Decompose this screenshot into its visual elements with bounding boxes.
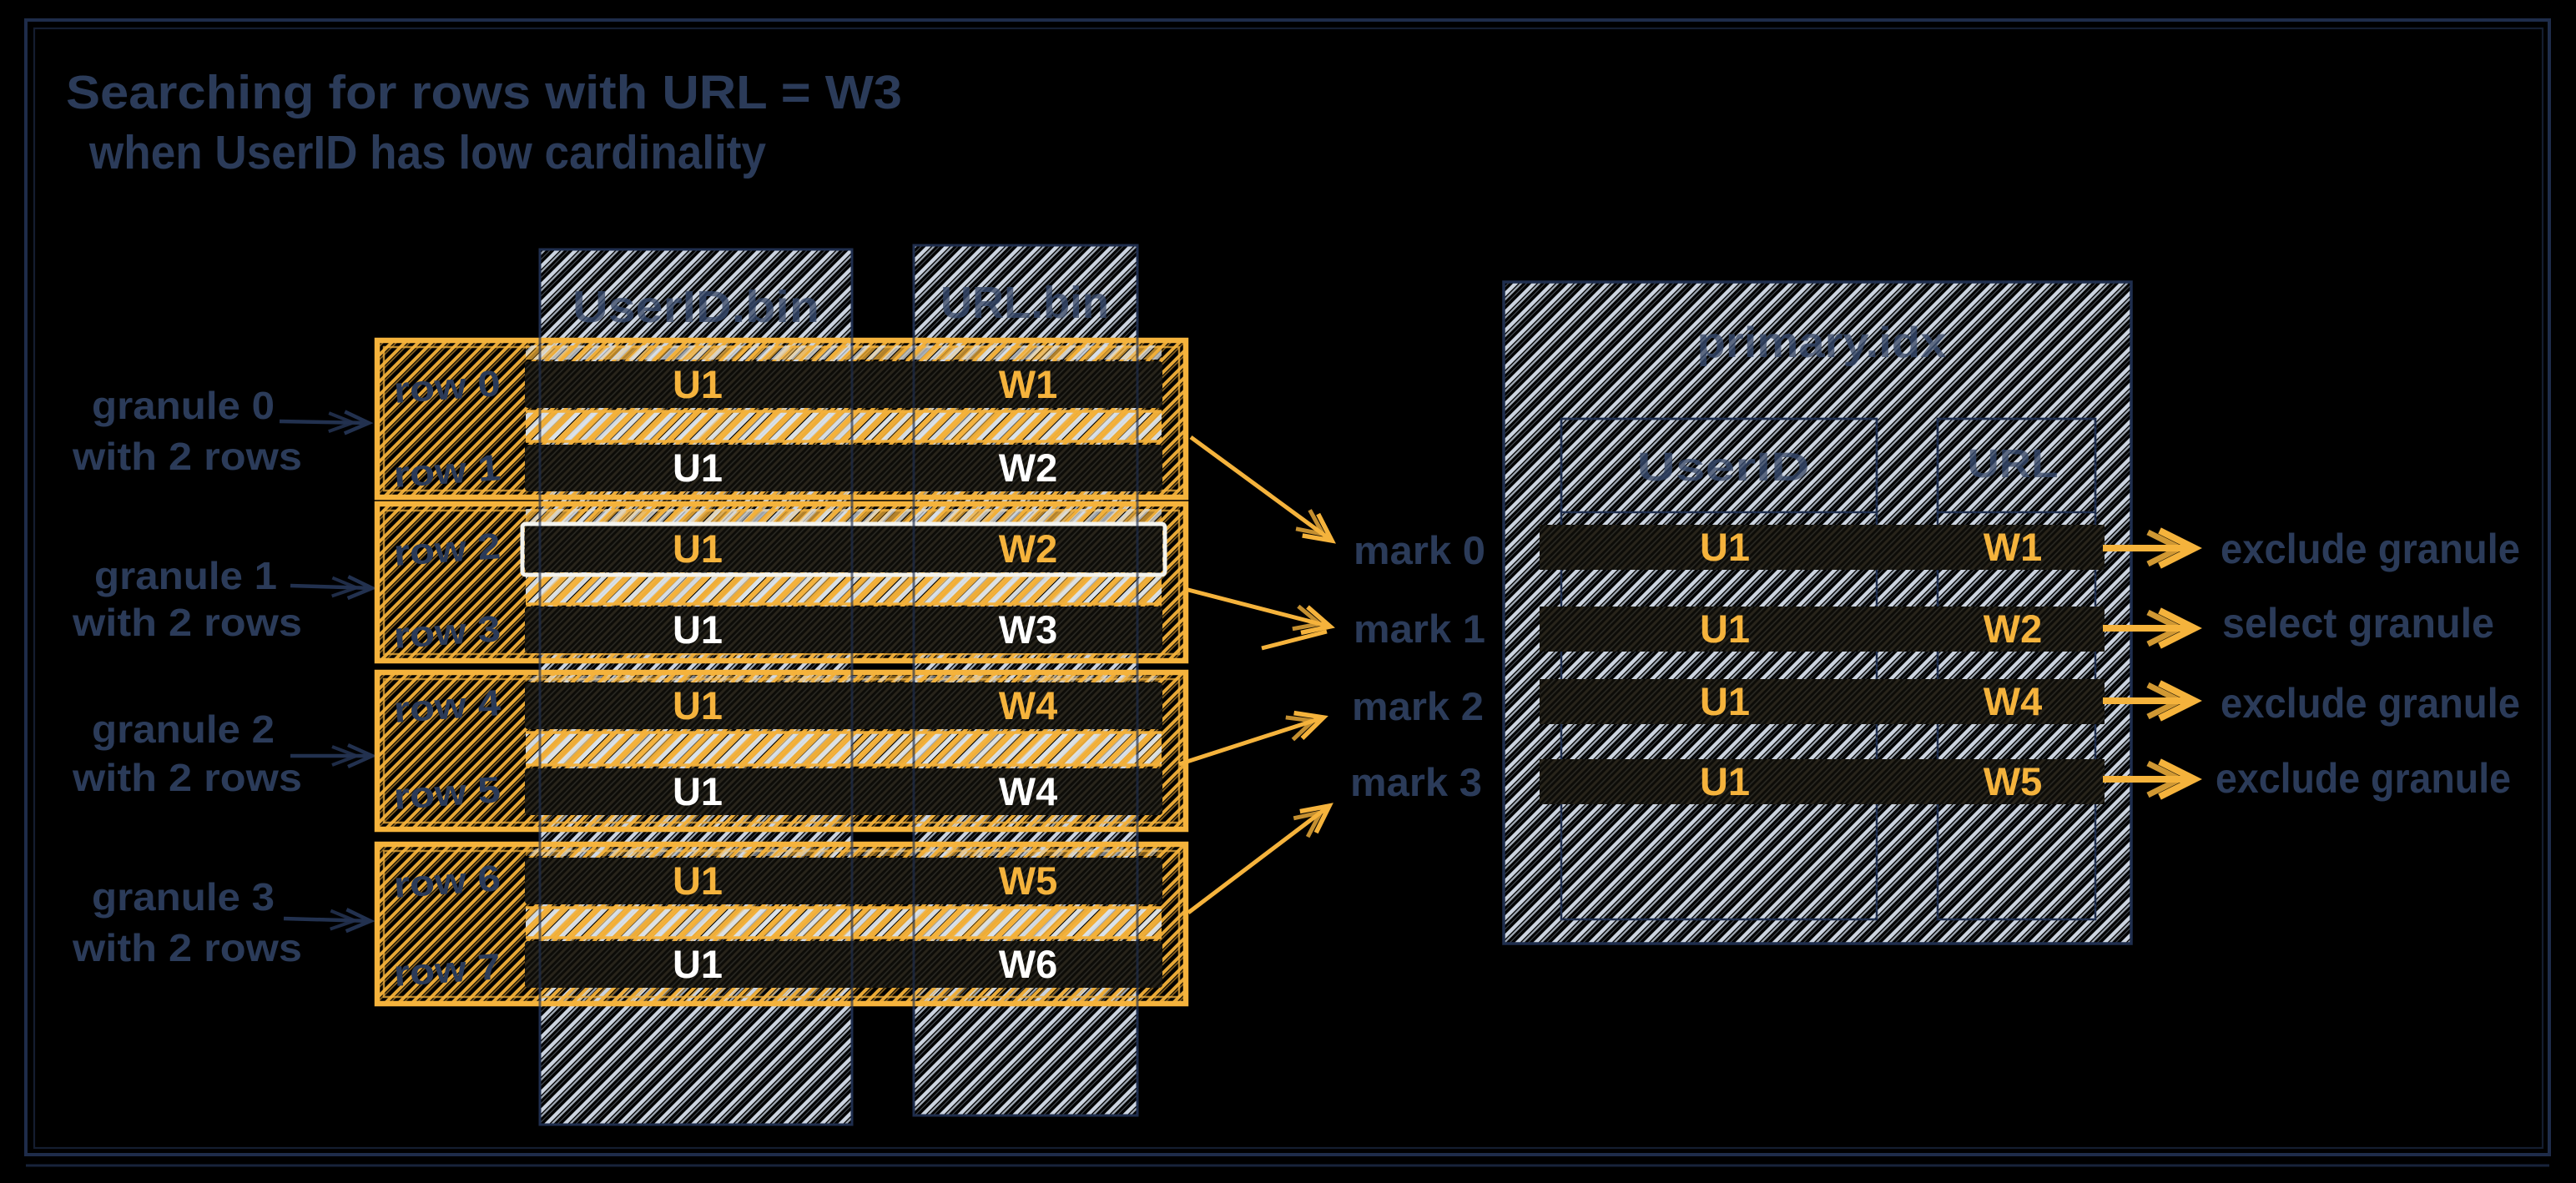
svg-text:exclude granule: exclude granule bbox=[2216, 755, 2511, 802]
svg-text:U1: U1 bbox=[673, 769, 723, 813]
svg-text:select granule: select granule bbox=[2222, 600, 2494, 647]
svg-text:U1: U1 bbox=[673, 683, 723, 727]
svg-text:U1: U1 bbox=[1700, 607, 1750, 651]
svg-text:mark 3: mark 3 bbox=[1350, 760, 1482, 804]
svg-text:U1: U1 bbox=[673, 858, 723, 903]
svg-text:U1: U1 bbox=[673, 446, 723, 490]
svg-text:row 6: row 6 bbox=[392, 858, 502, 906]
svg-text:row 5: row 5 bbox=[392, 769, 502, 818]
svg-text:U1: U1 bbox=[1700, 679, 1750, 723]
svg-text:U1: U1 bbox=[1700, 759, 1750, 803]
svg-text:when UserID has low cardinalit: when UserID has low cardinality bbox=[88, 126, 766, 179]
svg-text:granule 1: granule 1 bbox=[94, 554, 277, 597]
svg-text:U1: U1 bbox=[673, 526, 723, 571]
svg-text:W1: W1 bbox=[999, 362, 1058, 406]
svg-text:row 0: row 0 bbox=[392, 363, 502, 411]
svg-text:W3: W3 bbox=[999, 607, 1058, 652]
svg-text:W2: W2 bbox=[999, 526, 1058, 571]
svg-text:Searching for rows with URL =: Searching for rows with URL = W3 bbox=[66, 66, 902, 119]
svg-text:mark 2: mark 2 bbox=[1352, 684, 1484, 728]
svg-text:row 3: row 3 bbox=[392, 608, 502, 657]
svg-text:granule 2: granule 2 bbox=[92, 707, 275, 751]
svg-text:mark 1: mark 1 bbox=[1354, 607, 1485, 651]
svg-text:U1: U1 bbox=[673, 362, 723, 406]
svg-text:with 2 rows: with 2 rows bbox=[72, 435, 302, 478]
svg-text:with 2 rows: with 2 rows bbox=[72, 756, 302, 799]
svg-text:W5: W5 bbox=[1984, 759, 2043, 803]
svg-text:W2: W2 bbox=[1984, 607, 2043, 651]
svg-text:granule 3: granule 3 bbox=[92, 875, 275, 919]
svg-text:exclude granule: exclude granule bbox=[2221, 680, 2520, 727]
svg-text:row 2: row 2 bbox=[392, 526, 502, 574]
svg-text:W2: W2 bbox=[999, 446, 1058, 490]
svg-text:W4: W4 bbox=[999, 683, 1058, 727]
svg-text:row 7: row 7 bbox=[392, 946, 502, 994]
svg-text:U1: U1 bbox=[673, 607, 723, 652]
svg-text:W1: W1 bbox=[1984, 525, 2043, 569]
svg-text:with 2 rows: with 2 rows bbox=[72, 601, 302, 644]
svg-text:granule 0: granule 0 bbox=[92, 384, 275, 427]
svg-text:W4: W4 bbox=[999, 769, 1058, 813]
svg-text:row 4: row 4 bbox=[392, 682, 502, 731]
svg-text:exclude granule: exclude granule bbox=[2221, 526, 2520, 572]
svg-text:W5: W5 bbox=[999, 858, 1058, 903]
svg-text:mark 0: mark 0 bbox=[1354, 528, 1485, 572]
svg-text:U1: U1 bbox=[673, 942, 723, 986]
svg-text:W6: W6 bbox=[999, 942, 1058, 986]
svg-text:row 1: row 1 bbox=[392, 447, 502, 496]
svg-text:with 2 rows: with 2 rows bbox=[72, 926, 302, 969]
svg-text:W4: W4 bbox=[1984, 679, 2043, 723]
svg-text:U1: U1 bbox=[1700, 525, 1750, 569]
